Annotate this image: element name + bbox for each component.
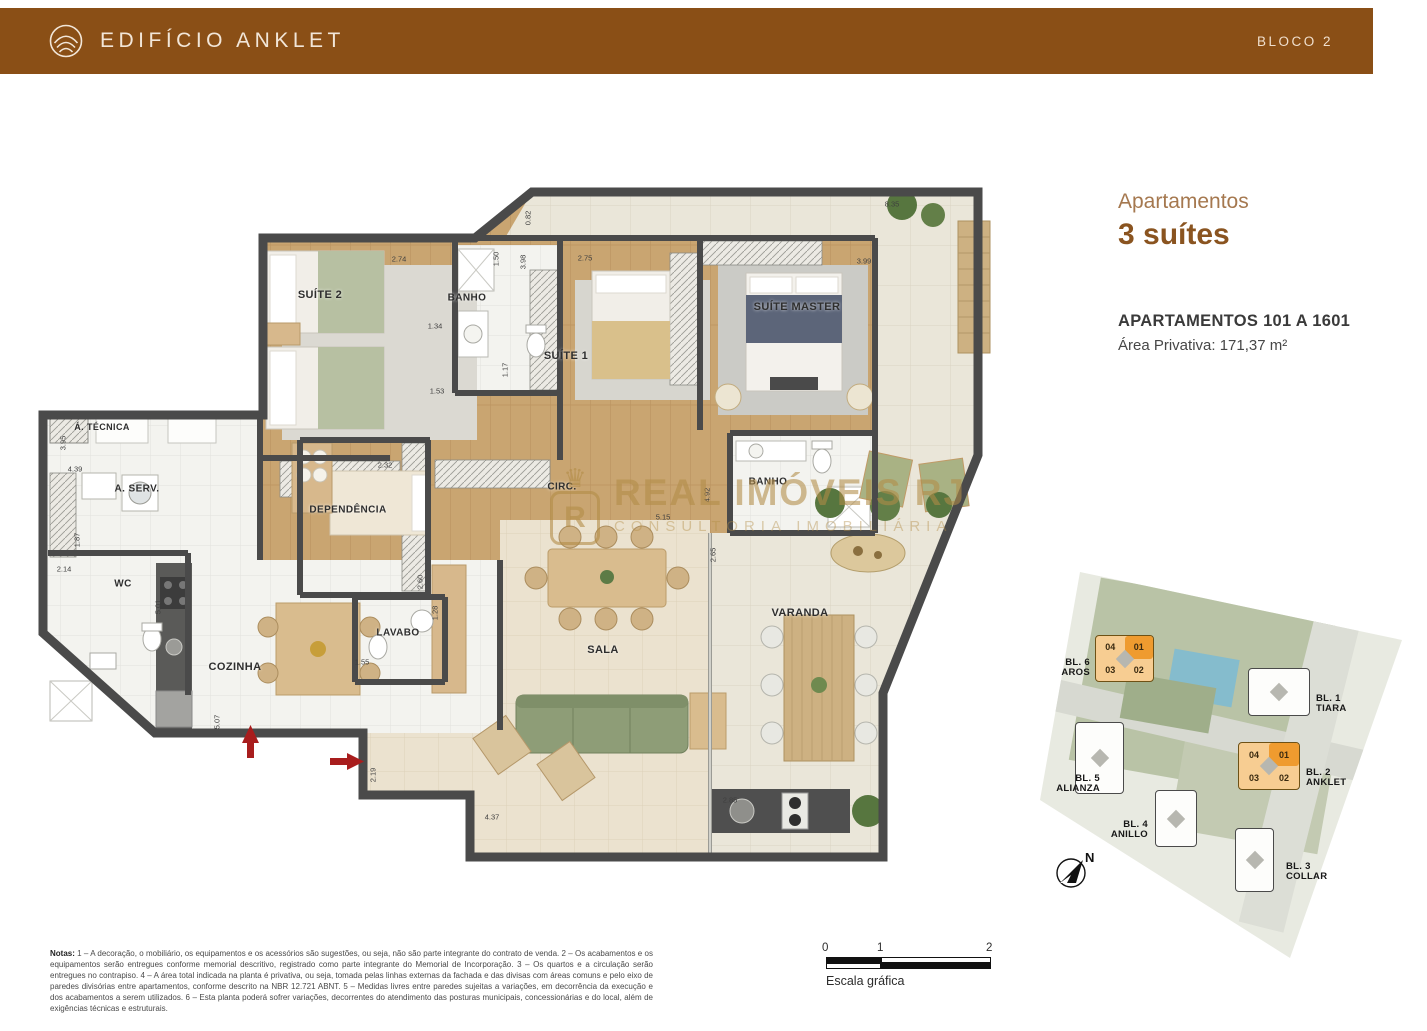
- info-category: Apartamentos: [1118, 190, 1408, 214]
- building-block-4: [1155, 790, 1197, 847]
- dimension-label: 0.82: [524, 211, 533, 226]
- dimension-label: 2.65: [709, 548, 718, 563]
- building-block-1: [1248, 668, 1310, 716]
- dimension-label: 1.55: [355, 658, 370, 667]
- suite1-bed: [592, 271, 670, 379]
- dimension-label: 5.07: [213, 715, 222, 730]
- room-label-lavabo: LAVABO: [376, 628, 419, 639]
- private-area: Área Privativa: 171,37 m²: [1118, 337, 1408, 354]
- dimension-label: 4.92: [703, 488, 712, 503]
- room-label-banho1: BANHO: [448, 293, 487, 304]
- room-label-area-tecnica: Á. TÉCNICA: [74, 422, 130, 432]
- room-label-wc: WC: [114, 579, 131, 590]
- dimension-label: 2.74: [392, 255, 407, 264]
- floor-plan: SUÍTE 2 BANHO SUÍTE 1 SUÍTE MASTER BANHO…: [30, 125, 1000, 930]
- building-block-3: [1235, 828, 1274, 892]
- dimension-label: 5.01: [154, 600, 163, 615]
- dimension-label: 4.39: [68, 465, 83, 474]
- dimension-label: 2.32: [378, 461, 393, 470]
- dimension-label: 2.14: [57, 565, 72, 574]
- scale-bar: 0 1 2 Escala gráfica: [820, 942, 1010, 988]
- label-block-3: BL. 3COLLAR: [1286, 862, 1327, 883]
- room-label-circ: CIRC.: [547, 482, 576, 493]
- dimension-label: 2.60: [416, 575, 425, 590]
- dimension-label: 1.17: [501, 363, 510, 378]
- label-block-2: BL. 2ANKLET: [1306, 768, 1346, 789]
- dimension-label: 4.37: [485, 813, 500, 822]
- site-map: 04 01 03 02 04 01 03 02 BL. 6AROS BL. 1T…: [1028, 562, 1408, 962]
- dimension-label: 8.35: [885, 200, 900, 209]
- floor-plan-drawing: [30, 125, 1000, 930]
- label-block-1: BL. 1TIARA: [1316, 694, 1347, 715]
- room-label-sala: SALA: [587, 644, 619, 656]
- room-label-cozinha: COZINHA: [209, 661, 262, 673]
- dimension-label: 1.53: [430, 387, 445, 396]
- dimension-label: 5.15: [656, 513, 671, 522]
- building-title: EDIFÍCIO ANKLET: [100, 29, 345, 53]
- dimension-label: 3.95: [59, 436, 68, 451]
- dimension-label: 2.85: [723, 796, 738, 805]
- dimension-label: 1.34: [428, 322, 443, 331]
- label-block-5: BL. 5ALIANZA: [1028, 774, 1100, 795]
- building-block-2: 04 01 03 02: [1238, 742, 1300, 790]
- dimension-label: 3.98: [519, 255, 528, 270]
- scale-bar-label: Escala gráfica: [826, 974, 1010, 988]
- dimension-label: 3.99: [857, 257, 872, 266]
- room-label-suite2: SUÍTE 2: [298, 289, 342, 301]
- label-block-6: BL. 6AROS: [1030, 658, 1090, 679]
- scale-tick: 1: [877, 942, 883, 954]
- building-block-6: 04 01 03 02: [1095, 635, 1154, 682]
- block-badge: BLOCO 2: [1257, 34, 1333, 49]
- notes-label: Notas:: [50, 949, 75, 958]
- apartments-range: APARTAMENTOS 101 A 1601: [1118, 312, 1408, 331]
- room-label-area-servico: A. SERV.: [115, 484, 160, 495]
- scale-tick: 2: [986, 942, 992, 954]
- dimension-label: 1.50: [492, 252, 501, 267]
- dimension-label: 2.19: [369, 768, 378, 783]
- info-headline: 3 suítes: [1118, 218, 1408, 252]
- room-label-dependencia: DEPENDÊNCIA: [309, 505, 386, 516]
- anklet-rings-logo-icon: [46, 21, 86, 61]
- room-label-suite-master: SUÍTE MASTER: [754, 301, 841, 313]
- svg-text:N: N: [1085, 850, 1094, 865]
- north-compass-icon: N: [1052, 848, 1104, 894]
- dimension-label: 2.75: [578, 254, 593, 263]
- room-label-varanda: VARANDA: [772, 607, 829, 619]
- room-label-banho2: BANHO: [749, 477, 788, 488]
- scale-tick: 0: [822, 942, 828, 954]
- dimension-label: 1.28: [431, 606, 440, 621]
- header-bar: EDIFÍCIO ANKLET BLOCO 2: [0, 8, 1373, 74]
- apartment-info-panel: Apartamentos 3 suítes APARTAMENTOS 101 A…: [1118, 190, 1408, 354]
- room-label-suite1: SUÍTE 1: [544, 350, 588, 362]
- brochure-page: EDIFÍCIO ANKLET BLOCO 2: [0, 0, 1427, 1031]
- notes-text: Notas: 1 – A decoração, o mobiliário, os…: [50, 948, 653, 1014]
- dimension-label: 1.87: [73, 533, 82, 548]
- label-block-4: BL. 4ANILLO: [1086, 820, 1148, 841]
